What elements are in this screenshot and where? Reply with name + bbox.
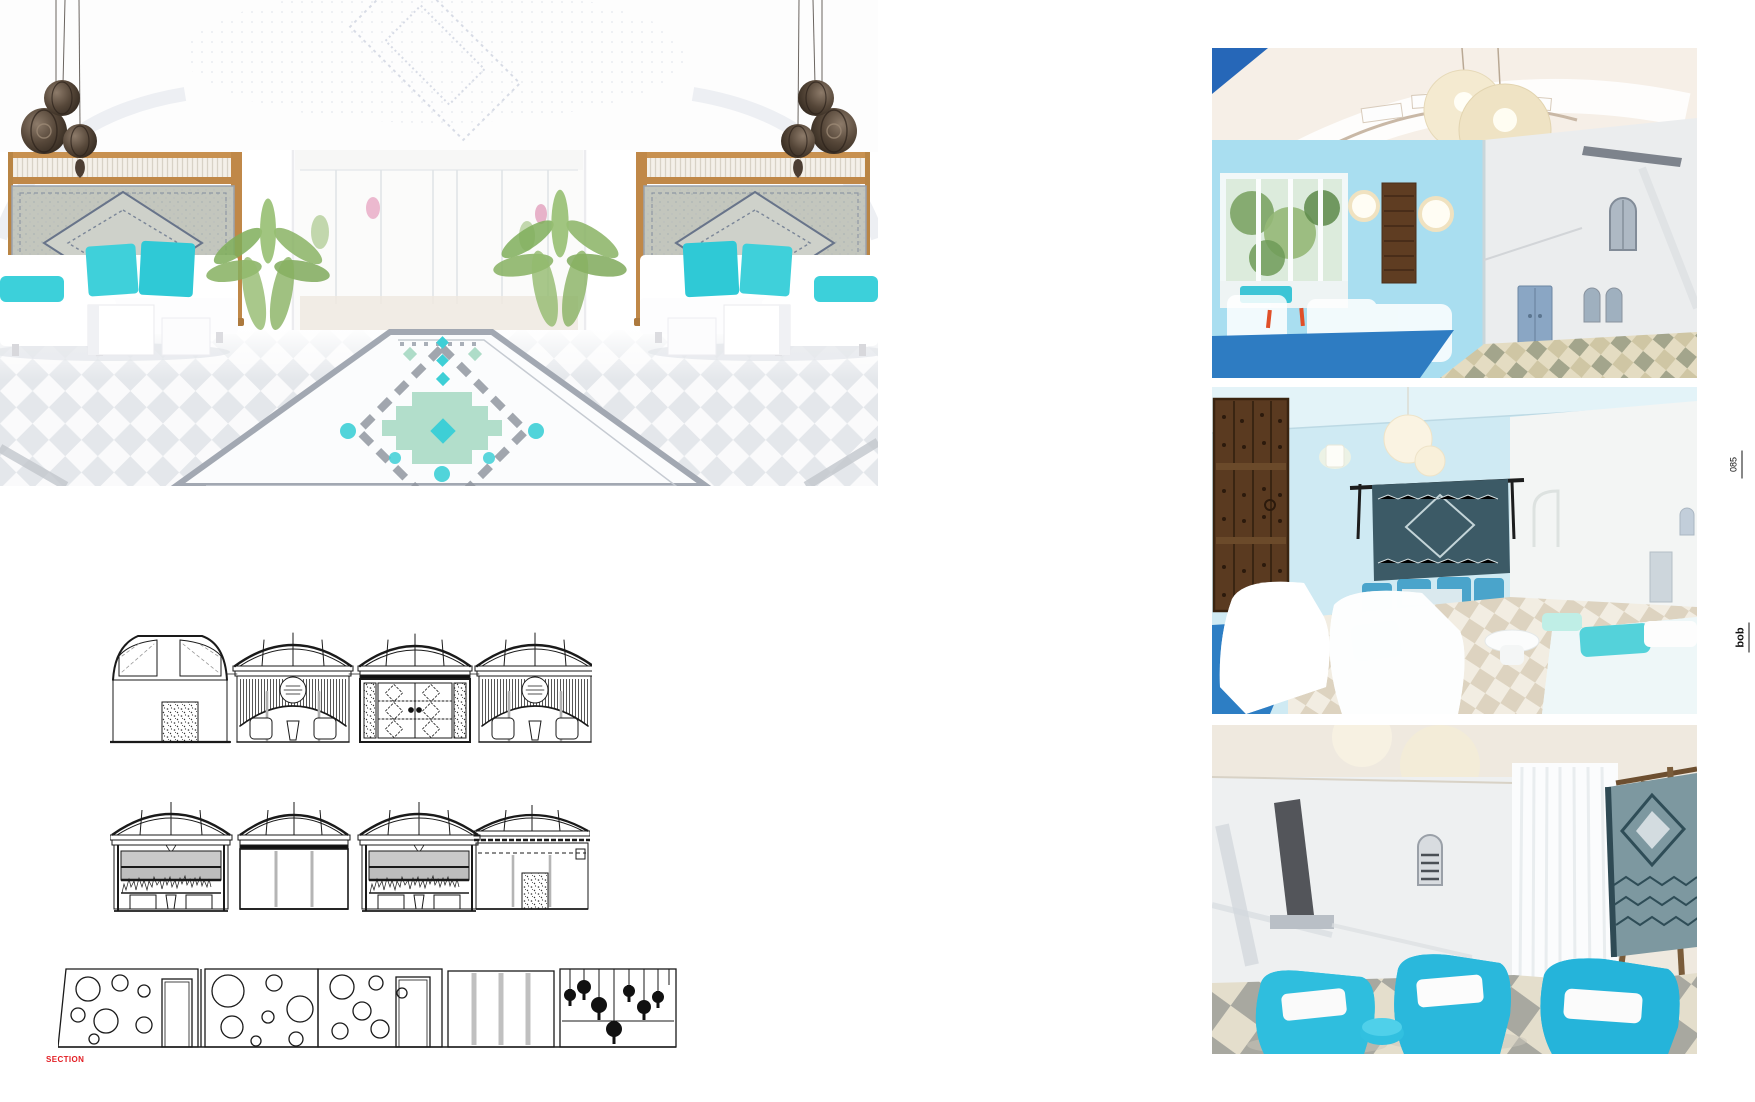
blue-carpet: [1212, 330, 1454, 378]
white-wire-armchairs: [1220, 582, 1465, 714]
glowing-sconce: [1420, 198, 1452, 230]
stone-door: [162, 702, 198, 742]
mural-niche-window: [1418, 835, 1442, 885]
turquoise-cushion: [0, 276, 64, 302]
page-number: 085: [1730, 451, 1743, 479]
elevation-drawing-row2: [110, 801, 590, 919]
decorated-door-module: [358, 634, 472, 742]
foreground-sofa: [1542, 613, 1697, 714]
perforated-wall-panel: [318, 969, 442, 1047]
magazine-logo: bob: [1735, 623, 1750, 653]
turquoise-cushion: [139, 241, 196, 298]
glowing-sconce: [1350, 192, 1378, 220]
wood-door: [1382, 183, 1416, 283]
white-seat-cushion: [1416, 974, 1484, 1008]
tapestry-bay-module: [110, 802, 232, 911]
perforated-wall-panel: [205, 969, 318, 1047]
section-drawing-row3: [58, 963, 680, 1053]
perforated-wall-panel: [58, 969, 198, 1047]
photo-wire-chairs-antique-door: [1212, 387, 1697, 714]
antique-wood-door: [1214, 399, 1288, 611]
village-mural-wall: [1212, 777, 1514, 985]
section-label: SECTION: [46, 1055, 84, 1064]
elevation-drawing-row1: [110, 630, 592, 750]
turquoise-cushion: [85, 243, 138, 296]
white-seat-cushion: [1563, 988, 1643, 1023]
stone-door-bay-module: [474, 805, 590, 909]
loom-with-tapestry: [1608, 767, 1697, 977]
sheer-curtain: [1512, 763, 1618, 985]
stone-door: [522, 873, 548, 909]
glazed-panel: [448, 971, 554, 1047]
photo-blue-lounge-mural: [1212, 48, 1697, 378]
door: [162, 979, 192, 1047]
hanging-tapestry-display: [1350, 479, 1524, 581]
blue-wall-zone: [1212, 140, 1484, 378]
wall-sconce: [1319, 445, 1351, 469]
turquoise-cushion: [1579, 623, 1651, 658]
arched-bay-module: [233, 633, 353, 742]
photo-cyan-chairs-loom: [1212, 725, 1697, 1054]
vault-section-module: [110, 636, 230, 742]
bougainvillea: [366, 197, 380, 219]
glazed-bay-module: [238, 802, 350, 909]
cyan-stool: [1360, 1018, 1404, 1045]
lobby-rendering-image: [0, 0, 878, 486]
lantern-bay-panel: [560, 969, 676, 1047]
book-spread: { "left_page": { "section_label": "SECTI…: [0, 0, 1755, 1102]
